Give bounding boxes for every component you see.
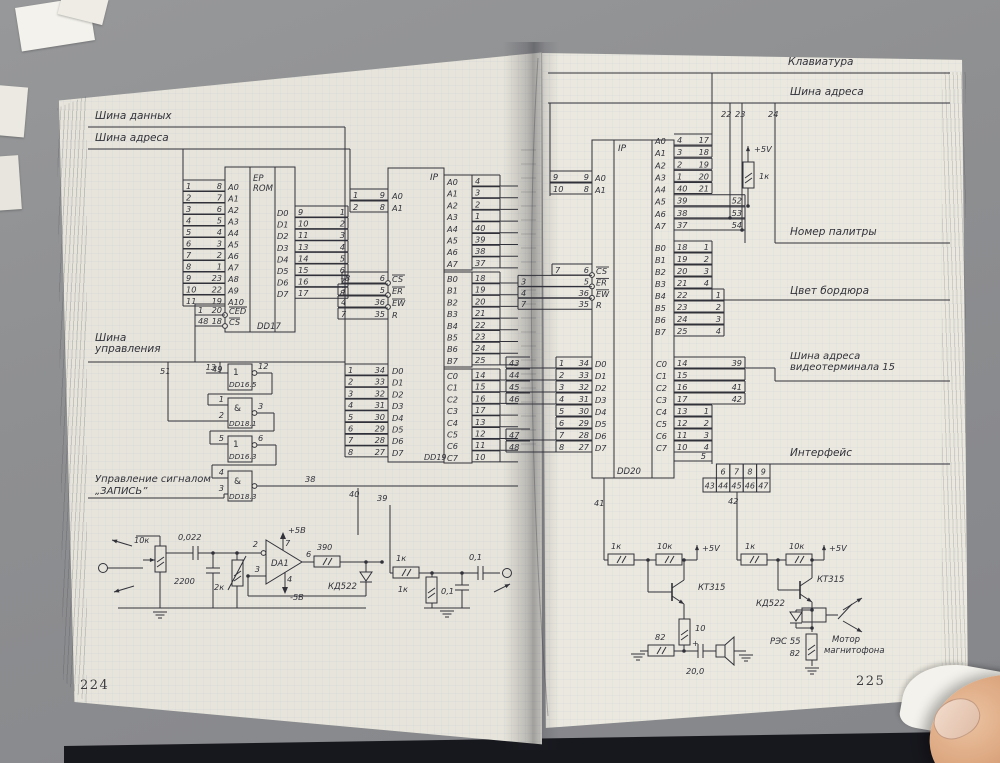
svg-text:13: 13: [677, 406, 687, 416]
svg-text:D4: D4: [277, 254, 289, 264]
svg-text:6: 6: [186, 239, 191, 249]
ram-chip-dd19: IPDD1919A028A186CS35ER436EW735R134D0233D…: [338, 168, 518, 463]
svg-text:D5: D5: [392, 425, 404, 435]
svg-text:20: 20: [212, 305, 222, 315]
svg-text:10: 10: [298, 219, 308, 229]
svg-text:B2: B2: [655, 267, 666, 277]
svg-text:B7: B7: [447, 356, 459, 366]
svg-text:2: 2: [677, 159, 682, 169]
svg-text:C2: C2: [656, 383, 667, 393]
svg-text:47: 47: [509, 430, 520, 440]
svg-text:1к: 1к: [398, 584, 408, 594]
svg-text:CS: CS: [596, 266, 607, 276]
svg-text:19: 19: [677, 254, 687, 264]
svg-text:управления: управления: [94, 343, 161, 355]
svg-text:5: 5: [701, 451, 706, 461]
svg-text:37: 37: [677, 220, 688, 230]
svg-text:D3: D3: [392, 401, 404, 411]
svg-text:45: 45: [731, 482, 741, 491]
svg-text:B6: B6: [447, 344, 458, 354]
svg-text:1: 1: [186, 181, 191, 191]
output-rc-stage: 1к1к0,10,1: [390, 552, 512, 617]
svg-text:15: 15: [677, 370, 687, 380]
svg-text:A7: A7: [446, 259, 459, 269]
svg-text:6: 6: [559, 418, 564, 428]
svg-text:1: 1: [348, 365, 353, 375]
svg-text:A2: A2: [446, 200, 458, 210]
svg-text:54: 54: [732, 220, 742, 230]
svg-text:A9: A9: [227, 286, 239, 296]
svg-text:+5V: +5V: [702, 543, 721, 553]
interface-connector: Интерфейс678943444546474142: [594, 447, 950, 560]
svg-text:2: 2: [716, 302, 721, 312]
svg-text:34: 34: [579, 358, 589, 368]
svg-text:16: 16: [298, 277, 308, 287]
svg-text:C1: C1: [656, 371, 667, 381]
svg-text:B1: B1: [447, 286, 458, 296]
svg-text:41: 41: [732, 382, 742, 392]
svg-text:0,1: 0,1: [441, 586, 454, 596]
svg-text:19: 19: [699, 159, 709, 169]
svg-text:24: 24: [677, 314, 687, 324]
svg-text:3: 3: [258, 401, 263, 411]
svg-text:45: 45: [509, 382, 519, 392]
svg-text:DD17: DD17: [257, 322, 281, 332]
svg-text:DD16.5: DD16.5: [229, 380, 257, 389]
svg-text:D3: D3: [595, 395, 607, 405]
svg-text:1: 1: [475, 211, 480, 221]
svg-text:17: 17: [677, 394, 688, 404]
svg-text:D1: D1: [595, 371, 607, 381]
svg-text:31: 31: [579, 394, 589, 404]
svg-text:9: 9: [380, 190, 385, 200]
svg-text:7: 7: [734, 468, 740, 477]
svg-text:12: 12: [258, 361, 268, 371]
svg-text:КД522: КД522: [756, 599, 785, 609]
svg-text:A6: A6: [446, 247, 458, 257]
svg-text:ROM: ROM: [253, 184, 274, 194]
svg-text:1к: 1к: [759, 171, 769, 181]
svg-text:5: 5: [348, 412, 353, 422]
svg-text:8: 8: [584, 184, 589, 194]
svg-text:6: 6: [380, 273, 385, 283]
svg-text:20,0: 20,0: [686, 666, 704, 676]
svg-text:37: 37: [475, 258, 486, 268]
gutter-ticks: [521, 58, 548, 716]
svg-text:1: 1: [340, 207, 345, 217]
svg-text:1к: 1к: [745, 541, 755, 551]
svg-text:48: 48: [509, 442, 519, 452]
svg-text:20: 20: [699, 171, 709, 181]
svg-text:9: 9: [761, 468, 766, 477]
svg-text:КТ315: КТ315: [817, 575, 844, 585]
svg-text:48: 48: [198, 316, 208, 326]
left-control-bus: Шинауправления5149: [88, 332, 345, 421]
svg-text:7: 7: [341, 309, 347, 319]
svg-text:Шина адреса: Шина адреса: [790, 351, 860, 362]
svg-text:42: 42: [732, 394, 742, 404]
svg-text:43: 43: [509, 358, 519, 368]
svg-text:КД522: КД522: [328, 582, 357, 592]
svg-text:1: 1: [704, 406, 709, 416]
svg-text:2: 2: [253, 539, 258, 549]
svg-text:EW: EW: [596, 289, 610, 299]
svg-text:A5: A5: [654, 197, 666, 207]
svg-text:4: 4: [716, 326, 721, 336]
svg-text:3: 3: [219, 483, 224, 493]
svg-text:EW: EW: [392, 298, 406, 308]
svg-text:35: 35: [375, 309, 385, 319]
svg-text:3: 3: [475, 188, 480, 198]
svg-text:36: 36: [579, 288, 589, 298]
svg-text:1: 1: [677, 171, 682, 181]
svg-text:Управление сигналом: Управление сигналом: [95, 474, 211, 485]
svg-text:1: 1: [704, 242, 709, 252]
svg-text:1: 1: [219, 394, 224, 404]
svg-text:2: 2: [340, 219, 345, 229]
svg-text:3: 3: [716, 314, 721, 324]
svg-text:C4: C4: [656, 407, 667, 417]
svg-text:30: 30: [375, 412, 385, 422]
svg-text:D7: D7: [595, 443, 607, 453]
svg-text:11: 11: [475, 440, 485, 450]
svg-text:21: 21: [677, 278, 687, 288]
svg-text:5: 5: [559, 406, 564, 416]
svg-text:1: 1: [233, 440, 239, 450]
svg-text:C3: C3: [656, 395, 667, 405]
svg-text:B6: B6: [655, 315, 666, 325]
svg-text:РЭС 55: РЭС 55: [770, 637, 801, 647]
svg-text:A3: A3: [654, 172, 666, 182]
svg-text:0,1: 0,1: [469, 552, 482, 562]
pullup-resistor: +5V1к: [743, 144, 773, 208]
svg-text:B0: B0: [655, 243, 666, 253]
svg-text:B2: B2: [447, 297, 458, 307]
svg-text:16: 16: [677, 382, 687, 392]
svg-text:35: 35: [579, 299, 589, 309]
svg-text:4: 4: [186, 216, 191, 226]
svg-text:1: 1: [198, 305, 203, 315]
svg-text:R: R: [596, 300, 602, 310]
svg-text:41: 41: [594, 498, 604, 508]
svg-text:22: 22: [677, 290, 687, 300]
svg-text:22: 22: [212, 285, 222, 295]
svg-text:17: 17: [475, 405, 486, 415]
svg-text:3: 3: [677, 147, 682, 157]
svg-text:16: 16: [475, 393, 485, 403]
svg-text:магнитофона: магнитофона: [824, 646, 885, 656]
svg-text:7: 7: [285, 538, 291, 548]
svg-text:8: 8: [217, 181, 222, 191]
svg-text:2: 2: [186, 193, 191, 203]
svg-text:27: 27: [579, 442, 590, 452]
svg-text:39: 39: [377, 493, 387, 503]
svg-text:A2: A2: [654, 160, 666, 170]
svg-text:D2: D2: [595, 383, 607, 393]
svg-text:10к: 10к: [789, 541, 804, 551]
svg-text:4: 4: [677, 135, 682, 145]
svg-text:24: 24: [768, 109, 778, 119]
svg-text:14: 14: [677, 358, 687, 368]
svg-text:17: 17: [298, 288, 309, 298]
svg-text:4: 4: [219, 467, 224, 477]
svg-text:B3: B3: [447, 309, 458, 319]
svg-text:DD18.3: DD18.3: [229, 492, 257, 501]
svg-text:2: 2: [348, 377, 353, 387]
svg-text:33: 33: [375, 377, 385, 387]
svg-text:33: 33: [579, 370, 589, 380]
svg-text:A1: A1: [391, 203, 403, 213]
svg-text:28: 28: [579, 430, 589, 440]
svg-text:3: 3: [559, 382, 564, 392]
svg-text:7: 7: [217, 193, 223, 203]
svg-text:6: 6: [348, 424, 353, 434]
svg-text:C5: C5: [447, 430, 458, 440]
svg-text:5: 5: [340, 253, 345, 263]
svg-text:6: 6: [721, 468, 726, 477]
svg-text:A7: A7: [654, 221, 667, 231]
analog-input-stage: 10к0,02222002к2DA13+5В7-5В46390КД522: [99, 525, 384, 618]
svg-text:A7: A7: [227, 263, 240, 273]
svg-text:Клавиатура: Клавиатура: [788, 56, 853, 68]
svg-text:видеотерминала 15: видеотерминала 15: [790, 362, 895, 373]
svg-text:5: 5: [584, 276, 589, 286]
svg-text:39: 39: [732, 358, 742, 368]
svg-text:10: 10: [553, 184, 563, 194]
svg-text:29: 29: [579, 418, 589, 428]
svg-text:D7: D7: [392, 448, 404, 458]
svg-text:51: 51: [160, 366, 170, 376]
write-signal-label: Управление сигналом„ЗАПИСЬ”4039: [88, 474, 390, 573]
svg-text:34: 34: [375, 365, 385, 375]
amp1-speaker: 1к10к+5VКТ3151082+20,0: [604, 541, 753, 676]
svg-text:10: 10: [677, 442, 687, 452]
svg-text:52: 52: [732, 196, 742, 206]
svg-text:6: 6: [584, 265, 589, 275]
svg-text:1: 1: [716, 290, 721, 300]
svg-text:4: 4: [704, 278, 709, 288]
svg-text:10: 10: [186, 285, 196, 295]
svg-text:3: 3: [704, 266, 709, 276]
svg-text:5: 5: [380, 285, 385, 295]
svg-text:82: 82: [655, 632, 665, 642]
svg-text:C3: C3: [447, 406, 458, 416]
svg-text:B5: B5: [447, 333, 458, 343]
svg-text:1к: 1к: [611, 541, 621, 551]
svg-text:A3: A3: [227, 217, 239, 227]
svg-text:B4: B4: [655, 291, 666, 301]
svg-text:&: &: [234, 477, 241, 487]
svg-text:D0: D0: [392, 366, 404, 376]
svg-text:A0: A0: [446, 177, 458, 187]
svg-text:44: 44: [718, 482, 728, 491]
svg-text:C7: C7: [656, 443, 668, 453]
svg-text:5: 5: [219, 433, 224, 443]
svg-text:DD19: DD19: [424, 453, 447, 462]
svg-text:4: 4: [521, 288, 526, 298]
svg-text:D0: D0: [595, 359, 607, 369]
svg-text:A5: A5: [446, 236, 458, 246]
svg-text:D1: D1: [277, 220, 289, 230]
svg-text:A4: A4: [654, 185, 666, 195]
svg-text:A5: A5: [227, 240, 239, 250]
svg-text:D0: D0: [277, 208, 289, 218]
svg-text:9: 9: [186, 273, 191, 283]
svg-text:IP: IP: [618, 144, 627, 154]
svg-text:ER: ER: [392, 286, 403, 296]
svg-text:11: 11: [677, 430, 687, 440]
svg-text:B5: B5: [655, 303, 666, 313]
svg-text:2: 2: [559, 370, 564, 380]
svg-text:0,022: 0,022: [178, 532, 201, 542]
svg-text:C1: C1: [447, 383, 458, 393]
page-number-right: 225: [856, 674, 885, 689]
svg-text:9: 9: [553, 172, 558, 182]
svg-text:C7: C7: [447, 453, 459, 463]
svg-text:A0: A0: [594, 173, 606, 183]
svg-text:2: 2: [475, 199, 480, 209]
svg-text:40: 40: [677, 184, 687, 194]
svg-text:&: &: [234, 404, 241, 414]
svg-text:D1: D1: [392, 378, 404, 388]
svg-text:D5: D5: [595, 419, 607, 429]
svg-text:C5: C5: [656, 419, 667, 429]
svg-text:23: 23: [475, 332, 485, 342]
svg-text:7: 7: [559, 430, 565, 440]
svg-text:10: 10: [695, 623, 705, 633]
svg-text:7: 7: [555, 265, 561, 275]
svg-text:28: 28: [375, 435, 385, 445]
svg-text:2: 2: [704, 418, 709, 428]
svg-text:10к: 10к: [657, 541, 672, 551]
svg-text:2к: 2к: [214, 582, 224, 592]
svg-text:A8: A8: [227, 274, 239, 284]
svg-text:8: 8: [747, 468, 752, 477]
svg-text:D2: D2: [392, 389, 404, 399]
svg-text:9: 9: [584, 172, 589, 182]
rom-chip-dd17: EPROM18A027A136A245A354A463A572A681A7923…: [183, 167, 348, 362]
svg-text:CED: CED: [229, 306, 246, 316]
svg-text:4: 4: [287, 574, 292, 584]
svg-text:DD16.3: DD16.3: [229, 452, 257, 461]
svg-text:DD18.1: DD18.1: [229, 419, 257, 428]
svg-text:11: 11: [298, 230, 308, 240]
svg-text:8: 8: [345, 273, 350, 283]
svg-text:ER: ER: [596, 277, 607, 287]
svg-text:32: 32: [579, 382, 589, 392]
svg-text:R: R: [392, 310, 398, 320]
svg-text:8: 8: [348, 447, 353, 457]
svg-text:82: 82: [790, 648, 800, 658]
svg-text:CS: CS: [229, 317, 240, 327]
svg-text:38: 38: [305, 474, 315, 484]
svg-text:46: 46: [745, 482, 755, 491]
svg-text:1: 1: [233, 368, 239, 378]
svg-text:1: 1: [217, 262, 222, 272]
svg-text:D5: D5: [277, 266, 289, 276]
svg-text:36: 36: [375, 297, 385, 307]
svg-text:Мотор: Мотор: [832, 635, 860, 645]
svg-text:4: 4: [475, 176, 480, 186]
svg-text:7: 7: [348, 435, 354, 445]
svg-text:A0: A0: [227, 182, 239, 192]
svg-text:39: 39: [475, 235, 485, 245]
svg-text:2: 2: [219, 410, 224, 420]
svg-text:D7: D7: [277, 289, 289, 299]
svg-text:A3: A3: [446, 212, 458, 222]
svg-text:2: 2: [353, 202, 358, 212]
svg-text:B4: B4: [447, 321, 458, 331]
svg-text:29: 29: [375, 424, 385, 434]
svg-text:4: 4: [559, 394, 564, 404]
svg-text:A1: A1: [594, 185, 606, 195]
svg-text:3: 3: [521, 276, 526, 286]
svg-text:13: 13: [298, 242, 308, 252]
svg-text:3: 3: [341, 285, 346, 295]
svg-text:8: 8: [380, 202, 385, 212]
svg-text:18: 18: [699, 147, 709, 157]
svg-text:C0: C0: [656, 359, 667, 369]
book-photo: Шина данныхШина адресаEPROM18A027A136A24…: [0, 0, 1000, 763]
svg-text:13: 13: [206, 362, 216, 372]
schematic-drawing: Шина данныхШина адресаEPROM18A027A136A24…: [0, 0, 1000, 763]
svg-text:D2: D2: [277, 231, 289, 241]
amp2-relay: 1к10к+5VКТ315КД522РЭС 5582Мотормагнитофо…: [737, 541, 885, 674]
svg-text:A0: A0: [391, 191, 403, 201]
svg-text:3: 3: [340, 230, 345, 240]
svg-text:CS: CS: [392, 274, 403, 284]
svg-text:6: 6: [258, 433, 263, 443]
svg-text:A2: A2: [227, 205, 239, 215]
svg-text:4: 4: [348, 400, 353, 410]
svg-text:D6: D6: [392, 436, 404, 446]
svg-text:23: 23: [735, 109, 745, 119]
svg-text:390: 390: [317, 543, 332, 552]
svg-text:3: 3: [217, 239, 222, 249]
svg-text:21: 21: [699, 184, 709, 194]
svg-text:14: 14: [298, 253, 308, 263]
svg-text:Шина данных: Шина данных: [95, 110, 172, 122]
svg-text:+5В: +5В: [288, 525, 306, 535]
svg-text:13: 13: [475, 417, 485, 427]
svg-text:3: 3: [704, 430, 709, 440]
svg-text:27: 27: [375, 447, 386, 457]
svg-text:8: 8: [186, 262, 191, 272]
svg-text:1к: 1к: [396, 553, 406, 563]
svg-text:44: 44: [509, 370, 519, 380]
svg-text:46: 46: [509, 394, 519, 404]
svg-text:„ЗАПИСЬ”: „ЗАПИСЬ”: [95, 486, 148, 497]
svg-text:Номер палитры: Номер палитры: [790, 226, 877, 238]
svg-text:2200: 2200: [174, 576, 195, 586]
svg-text:A1: A1: [227, 194, 239, 204]
svg-text:18: 18: [677, 242, 687, 252]
svg-text:C0: C0: [447, 371, 458, 381]
svg-text:КТ315: КТ315: [698, 583, 725, 593]
svg-text:4: 4: [217, 227, 222, 237]
svg-text:+5V: +5V: [754, 144, 773, 154]
svg-text:IP: IP: [430, 173, 439, 183]
svg-text:7: 7: [186, 250, 192, 260]
svg-text:21: 21: [475, 308, 485, 318]
svg-text:D3: D3: [277, 243, 289, 253]
svg-text:47: 47: [758, 482, 769, 491]
svg-text:31: 31: [375, 400, 385, 410]
svg-text:12: 12: [475, 429, 485, 439]
svg-text:A1: A1: [446, 189, 458, 199]
svg-text:3: 3: [186, 204, 191, 214]
svg-text:12: 12: [677, 418, 687, 428]
